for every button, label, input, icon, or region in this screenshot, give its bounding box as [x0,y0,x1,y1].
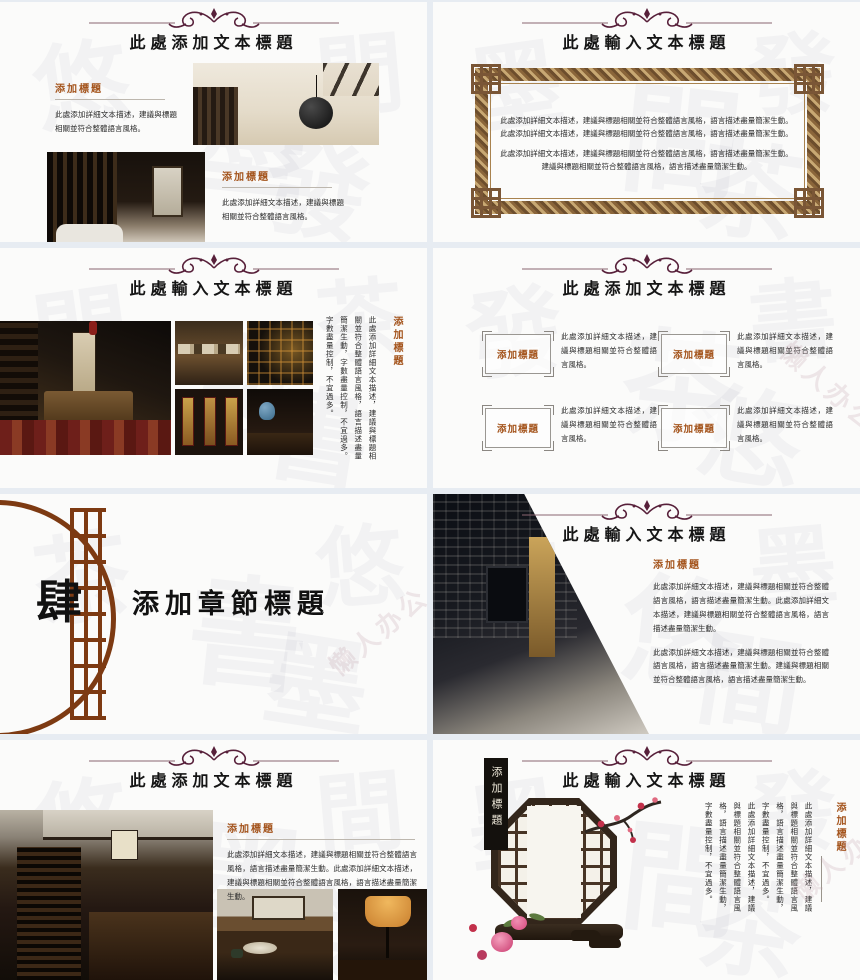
flower-bud [477,950,487,960]
photo-red-lantern [89,321,97,335]
wooden-object [589,936,621,948]
photo-hanging-scroll [72,332,96,394]
slide-3-header: 此處輸入文本標題 [0,253,427,299]
photo-lattice-screen [17,847,81,980]
item-label: 添加標題 [662,335,726,373]
photo-table-surface [338,960,427,980]
photo-lattice-window [247,321,313,385]
text-block-2: 添加標題 此處添加詳細文本描述，建議與標題相關並符合整體語言風格。 [222,168,344,224]
block-body: 此處添加詳細文本描述，建議與標題相關並符合整體語言風格，語言描述盡量簡潔生動。此… [227,848,417,904]
photo-scroll [204,397,216,447]
photo-scroll [225,397,237,447]
plum-blossom-branch-icon [583,790,663,850]
item-label: 添加標題 [662,409,726,447]
photo-pendant-lamp [299,97,333,129]
flourish-ornament-icon [522,7,772,29]
photo-tables-chairs [89,912,213,980]
slide-title: 此處添加文本標題 [0,767,427,791]
frame-text-block: 此處添加詳細文本描述，建議與標題相關並符合整體語言風格，語言描述盡量簡潔生動。 … [481,114,812,174]
slide-1-header: 此處添加文本標題 [0,7,427,53]
block-body: 此處添加詳細文本描述，建議與標題相關並符合整體語言風格。 [222,196,344,224]
flower-bud [469,924,477,932]
photo-wood-slats [193,87,238,145]
photo-cabinet-top [247,433,313,455]
heading-underline [55,99,165,100]
frame-text-line: 此處添加詳細文本描述，建議與標題相關並符合整體語言風格，語言描述盡量簡潔生動。 [481,127,812,140]
flourish-ornament-icon [522,499,772,521]
slide-2-lattice-frame-text[interactable]: 茶發間墨 此處輸入文本標題 此處添加詳細文本描述，建議與標題相關並符合整體語言風… [433,2,860,242]
item-body: 此處添加詳細文本描述，建議與標題相關並符合整體語言風格。 [561,404,657,446]
text-block: 添加標題 此處添加詳細文本描述，建議與標題相關並符合整體語言風格，語言描述盡量簡… [227,820,417,904]
slide-title: 此處輸入文本標題 [433,29,860,53]
block-heading: 添加標題 [389,316,404,462]
info-item-3: 添加標題 此處添加詳細文本描述，建議與標題相關並符合整體語言風格。 [485,408,660,454]
slide-2-header: 此處輸入文本標題 [433,7,860,53]
slide-5-section-divider[interactable]: 墨悠書茶 肆 添加章節標題 [0,494,427,734]
block-body: 此處添加詳細文本描述，建議與標題相關並符合整體語言風格。 [55,108,177,136]
flourish-ornament-icon [89,7,339,29]
heading-underline [227,839,415,840]
block-heading: 添加標題 [832,802,847,914]
peony-flower [491,932,513,952]
slide-7-teahouse-photos[interactable]: 發間墨悠 此處添加文本標題 添加標題 此處添加詳細文本描述，建議與標題相關並符合… [0,740,427,980]
slide-title: 此處添加文本標題 [433,275,860,299]
item-body: 此處添加詳細文本描述，建議與標題相關並符合整體語言風格。 [561,330,657,372]
slide-7-header: 此處添加文本標題 [0,745,427,791]
photo-wall-painting [152,166,183,217]
slide-6-diagonal-photo-text[interactable]: 間墨悠書 此處輸入文本標題 添加標題 此處添加詳細文本描述，建議與標題相關並符合… [433,494,860,734]
slide-3-photo-collage-vertical-text[interactable]: 書茶發間 此處輸入文本標題 [0,248,427,488]
photo-lattice-glow [247,321,313,385]
block-heading: 添加標題 [227,820,417,835]
flourish-ornament-icon [89,253,339,275]
item-label: 添加標題 [486,335,550,373]
photo-porcelain-vase [259,402,275,420]
heading-underline [222,187,332,188]
vertical-text-block: 添加標題 此處添加詳細文本描述，建議與標題相關並符合整體語言風格，語言描述盡量簡… [695,802,847,914]
info-item-2: 添加標題 此處添加詳細文本描述，建議與標題相關並符合整體語言風格。 [661,334,836,380]
slide-4-four-info-boxes[interactable]: 悠書茶發 此處添加文本標題 添加標題 此處添加詳細文本描述，建議與標題相關並符合… [433,248,860,488]
flourish-ornament-icon [89,745,339,767]
photo-wall-scrolls [175,389,243,455]
block-heading: 添加標題 [222,168,344,183]
photo-lamp-stem [386,927,389,958]
slide-title: 此處添加文本標題 [0,29,427,53]
block-heading: 添加標題 [653,556,829,571]
info-item-1: 添加標題 此處添加詳細文本描述，建議與標題相關並符合整體語言風格。 [485,334,660,380]
item-label: 添加標題 [486,409,550,447]
text-block-1: 添加標題 此處添加詳細文本描述，建議與標題相關並符合整體語言風格。 [55,80,177,136]
ornate-label-box: 添加標題 [485,408,551,448]
heading-rule [821,856,822,902]
flourish-ornament-icon [522,253,772,275]
photo-ceiling-lamp [193,63,379,145]
slide-title: 此處輸入文本標題 [433,521,860,545]
photo-golden-light-band [529,537,555,657]
ornate-label-box: 添加標題 [661,334,727,374]
photo-scroll [182,397,194,447]
block-paragraph-2: 此處添加詳細文本描述，建議與標題相關並符合整體語言風格，語言描述盡量簡潔生動，字… [701,802,758,914]
frame-text-line: 此處添加詳細文本描述，建議與標題相關並符合整體語言風格，語言描述盡量簡潔生動。 [481,114,812,127]
slide-8-octagon-window[interactable]: 茶發間墨 此處輸入文本標題 添加標題 添 [433,740,860,980]
frame-corner-ornament [794,188,824,218]
photo-white-sofa [56,224,122,242]
flourish-ornament-icon [522,745,772,767]
text-block: 添加標題 此處添加詳細文本描述，建議與標題相關並符合整體語言風格，語言描述盡量簡… [653,556,829,687]
frame-text-line: 建議與標題相關並符合整體語言風格，語言描述盡量簡潔生動。 [481,160,812,173]
slide-title: 此處輸入文本標題 [0,275,427,299]
frame-corner-ornament [471,64,501,94]
vertical-text-block: 添加標題 此處添加詳細文本描述，建議與標題相關並符合整體語言風格，語言描述盡量簡… [322,316,404,462]
ornate-label-box: 添加標題 [485,334,551,374]
background-calligraphy-glyph: 墨 [257,626,376,734]
block-paragraph-2: 此處添加詳細文本描述，建議與標題相關並符合整體語言風格，語言描述盡量簡潔生動。建… [653,646,829,688]
slide-1-text-with-photos[interactable]: 發間墨悠 此處添加文本標題 添加標題 此處添加詳細文本描述，建議與標題相關並符合… [0,2,427,242]
block-paragraph-1: 此處添加詳細文本描述，建議與標題相關並符合整體語言風格，語言描述盡量簡潔生動，字… [758,802,815,914]
photo-cabinet-vase [247,389,313,455]
item-body: 此處添加詳細文本描述，建議與標題相關並符合整體語言風格。 [737,404,833,446]
item-body: 此處添加詳細文本描述，建議與標題相關並符合整體語言風格。 [737,330,833,372]
peony-flower [511,916,527,930]
photo-teahouse-interior [0,810,213,980]
photo-red-carpet [0,420,171,455]
photo-plate [243,942,277,954]
section-title: 添加章節標題 [132,582,330,621]
photo-classic-bedroom [0,321,171,455]
photo-tea-bowl [231,949,243,958]
photo-books-shelf [175,321,243,385]
slide-4-header: 此處添加文本標題 [433,253,860,299]
window-banner: 添加標題 [484,758,508,850]
photo-ceiling-beams [323,63,379,96]
info-item-4: 添加標題 此處添加詳細文本描述，建議與標題相關並符合整體語言風格。 [661,408,836,454]
photo-living-room [47,152,205,242]
photo-tv-screen [486,566,528,623]
section-number: 肆 [36,566,82,632]
photo-stacked-books [178,344,241,354]
block-paragraph-1: 此處添加詳細文本描述，建議與標題相關並符合整體語言風格，語言描述盡量簡潔生動。此… [653,580,829,636]
octagon-center-panel [527,806,581,918]
slide-6-header: 此處輸入文本標題 [433,499,860,545]
block-heading: 添加標題 [55,80,177,95]
frame-text-line: 此處添加詳細文本描述，建議與標題相關並符合整體語言風格，語言描述盡量簡潔生動。 [481,147,812,160]
ornate-label-box: 添加標題 [661,408,727,448]
window-banner-label: 添加標題 [488,758,504,830]
block-body: 此處添加詳細文本描述，建議與標題相關並符合整體語言風格，語言描述盡量簡潔生動，字… [322,316,379,462]
frame-corner-ornament [794,64,824,94]
frame-corner-ornament [471,188,501,218]
photo-square-lamp [111,830,139,859]
